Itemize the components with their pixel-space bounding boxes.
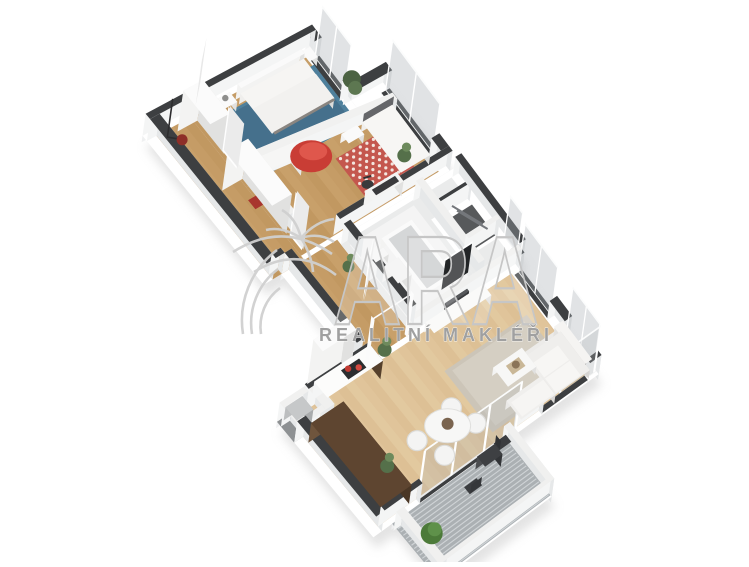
- svg-text:REALITNÍ MAKLÉŘI: REALITNÍ MAKLÉŘI: [319, 324, 553, 345]
